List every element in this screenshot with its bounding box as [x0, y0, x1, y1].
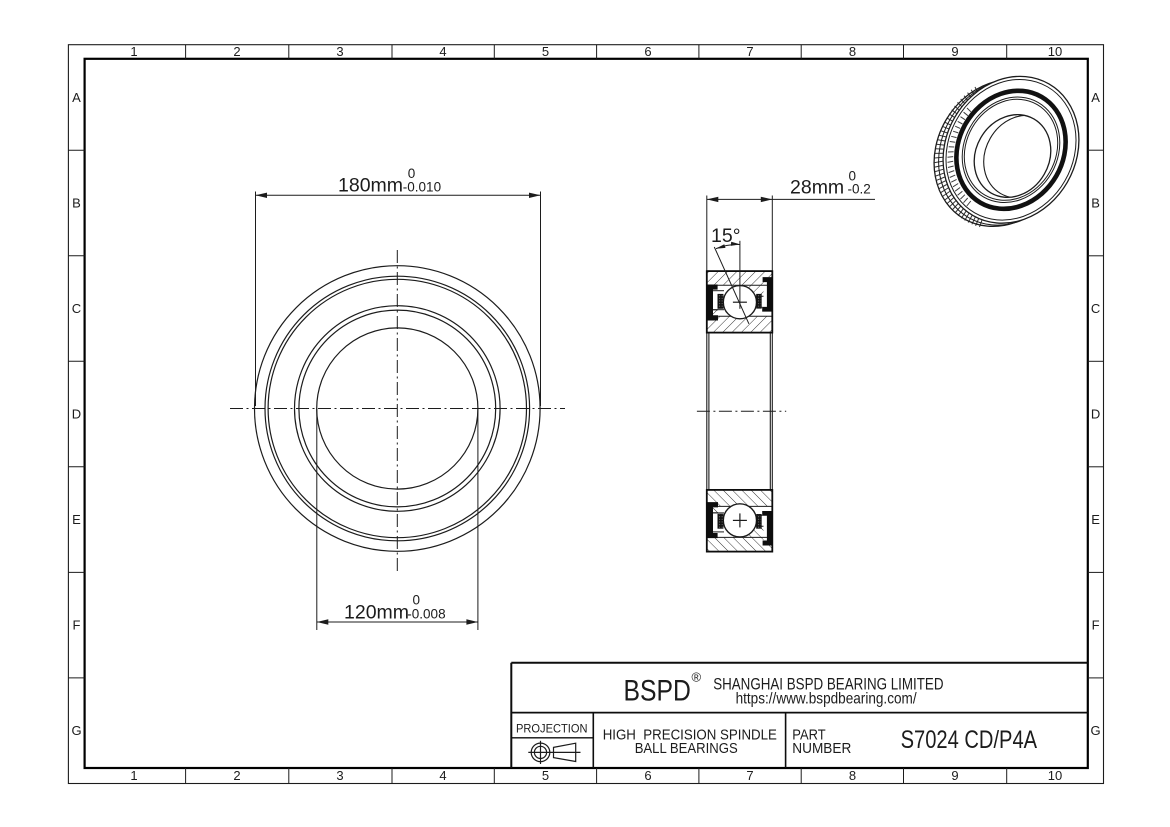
svg-text:S7024 CD/P4A: S7024 CD/P4A [901, 726, 1038, 754]
svg-text:C: C [72, 301, 81, 316]
svg-text:NUMBER: NUMBER [792, 741, 851, 757]
svg-text:C: C [1091, 301, 1100, 316]
svg-text:E: E [1091, 512, 1100, 527]
svg-text:0: 0 [413, 593, 421, 608]
svg-text:B: B [72, 196, 81, 211]
svg-text:120mm: 120mm [344, 601, 409, 623]
svg-text:8: 8 [849, 44, 856, 59]
svg-text:0: 0 [408, 166, 416, 181]
svg-text:6: 6 [644, 768, 651, 783]
svg-text:BSPD: BSPD [624, 674, 691, 707]
svg-text:9: 9 [951, 44, 958, 59]
svg-text:5: 5 [542, 44, 549, 59]
svg-text:5: 5 [542, 768, 549, 783]
svg-text:A: A [1091, 90, 1100, 105]
svg-text:2: 2 [233, 44, 240, 59]
svg-text:D: D [1091, 407, 1100, 422]
svg-text:BALL BEARINGS: BALL BEARINGS [635, 741, 738, 757]
svg-text:2: 2 [233, 768, 240, 783]
svg-text:28mm: 28mm [790, 177, 844, 199]
svg-text:3: 3 [336, 768, 343, 783]
svg-text:15°: 15° [711, 225, 741, 247]
svg-text:9: 9 [951, 768, 958, 783]
svg-text:PROJECTION: PROJECTION [516, 724, 588, 736]
svg-text:G: G [71, 723, 81, 738]
svg-text:G: G [1091, 723, 1101, 738]
svg-text:®: ® [692, 670, 702, 685]
svg-text:4: 4 [439, 768, 446, 783]
svg-text:https://www.bspdbearing.com/: https://www.bspdbearing.com/ [736, 691, 917, 708]
svg-text:1: 1 [130, 44, 137, 59]
svg-text:7: 7 [746, 44, 753, 59]
svg-text:180mm: 180mm [338, 175, 403, 197]
svg-text:1: 1 [130, 768, 137, 783]
svg-text:E: E [72, 512, 81, 527]
svg-text:-0.010: -0.010 [403, 180, 441, 195]
svg-text:4: 4 [439, 44, 446, 59]
svg-text:F: F [1092, 618, 1100, 633]
svg-text:-0.008: -0.008 [407, 606, 445, 621]
svg-text:10: 10 [1048, 44, 1062, 59]
svg-text:8: 8 [849, 768, 856, 783]
svg-text:F: F [73, 618, 81, 633]
svg-text:B: B [1091, 196, 1100, 211]
svg-text:A: A [72, 90, 81, 105]
svg-text:7: 7 [746, 768, 753, 783]
svg-text:3: 3 [336, 44, 343, 59]
svg-text:10: 10 [1048, 768, 1062, 783]
svg-text:-0.2: -0.2 [848, 182, 871, 197]
svg-text:6: 6 [644, 44, 651, 59]
svg-text:D: D [72, 407, 81, 422]
